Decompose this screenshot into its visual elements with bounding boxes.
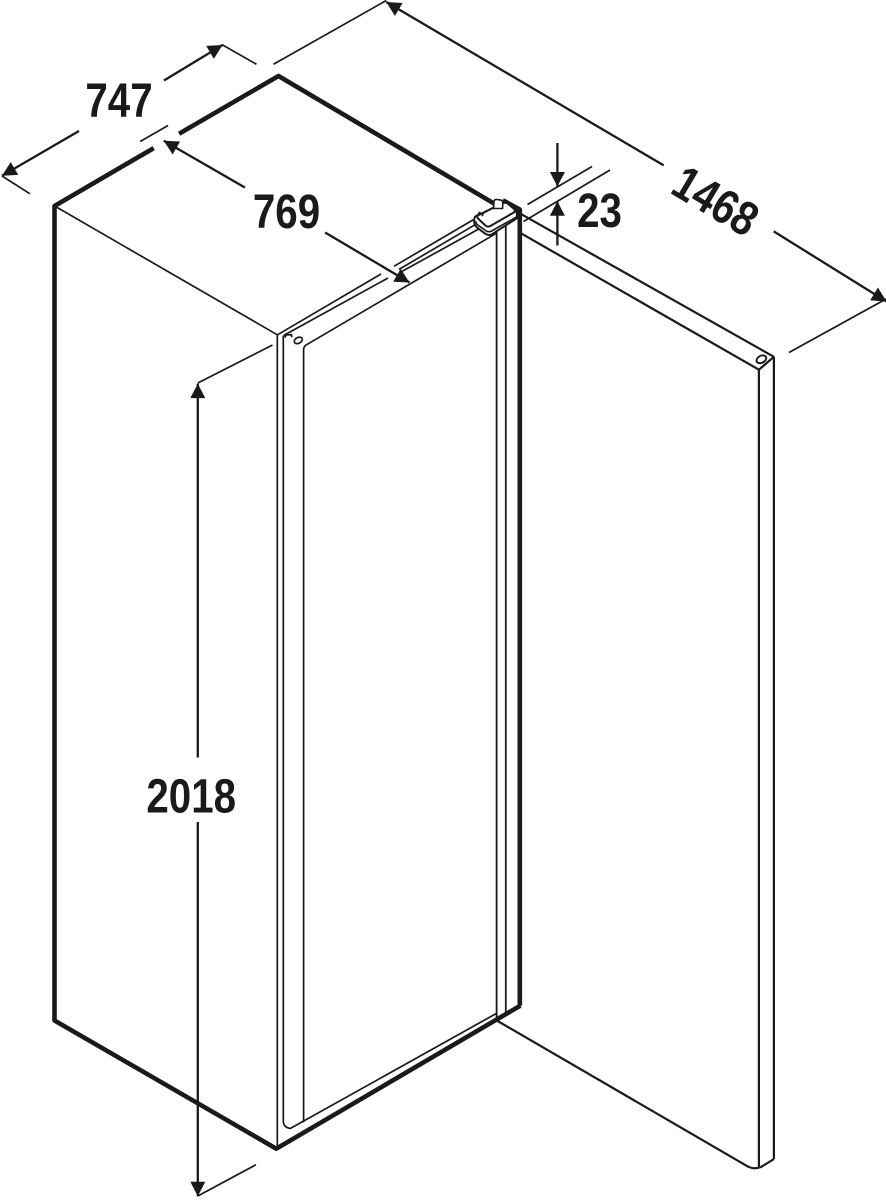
svg-text:1468: 1468 [663, 156, 767, 247]
svg-text:2018: 2018 [146, 770, 236, 823]
svg-text:769: 769 [253, 186, 320, 239]
svg-text:747: 747 [85, 75, 152, 128]
svg-text:23: 23 [577, 185, 622, 238]
